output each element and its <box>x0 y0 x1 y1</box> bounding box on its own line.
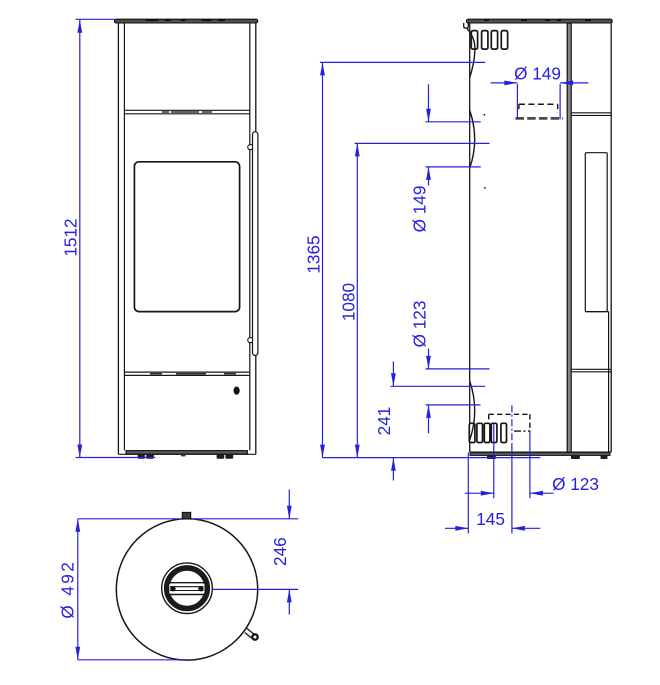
svg-text:Ø 149: Ø 149 <box>410 186 430 233</box>
svg-text:Ø 492: Ø 492 <box>57 560 77 619</box>
svg-text:Ø 123: Ø 123 <box>410 301 430 348</box>
svg-text:Ø 123: Ø 123 <box>552 474 599 494</box>
svg-text:1365: 1365 <box>304 235 324 273</box>
svg-text:145: 145 <box>476 509 505 529</box>
svg-text:1512: 1512 <box>61 218 81 256</box>
svg-text:1080: 1080 <box>338 283 358 321</box>
svg-text:241: 241 <box>374 407 394 436</box>
svg-text:246: 246 <box>270 537 290 566</box>
svg-text:Ø 149: Ø 149 <box>514 64 561 84</box>
